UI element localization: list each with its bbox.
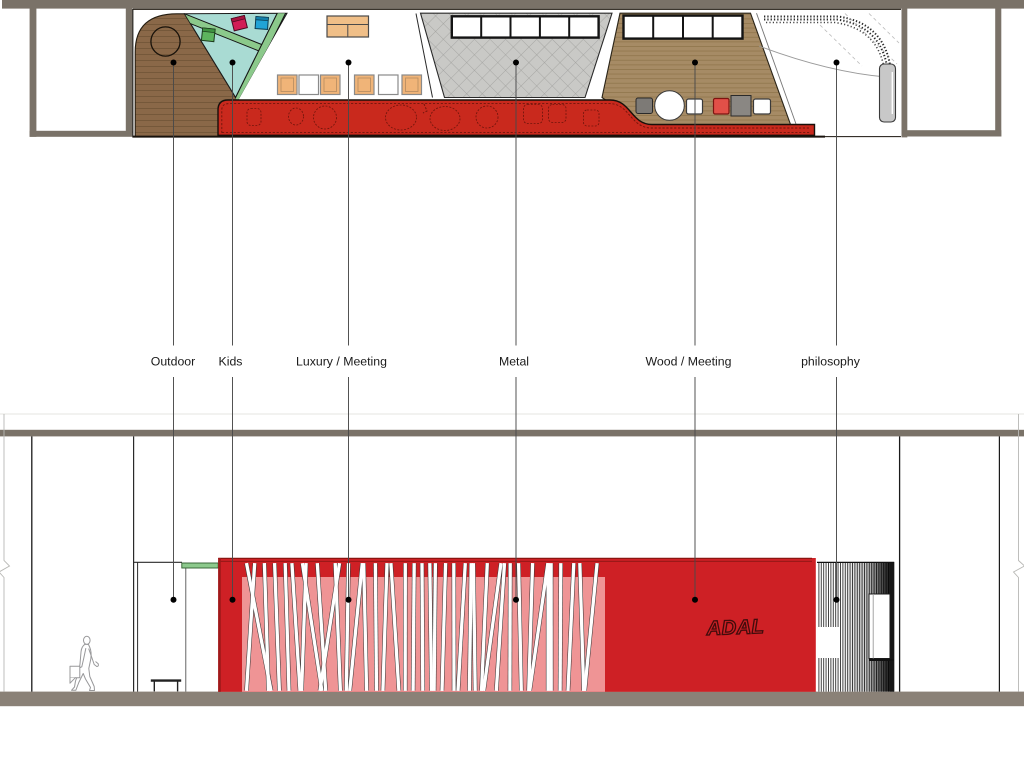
- svg-text:Metal: Metal: [499, 355, 529, 369]
- svg-text:Wood / Meeting: Wood / Meeting: [646, 355, 732, 369]
- svg-text:Kids: Kids: [219, 355, 243, 369]
- svg-text:ADAL: ADAL: [705, 616, 764, 640]
- svg-text:Outdoor: Outdoor: [151, 355, 195, 369]
- svg-text:philosophy: philosophy: [801, 355, 861, 369]
- svg-text:Luxury / Meeting: Luxury / Meeting: [296, 355, 387, 369]
